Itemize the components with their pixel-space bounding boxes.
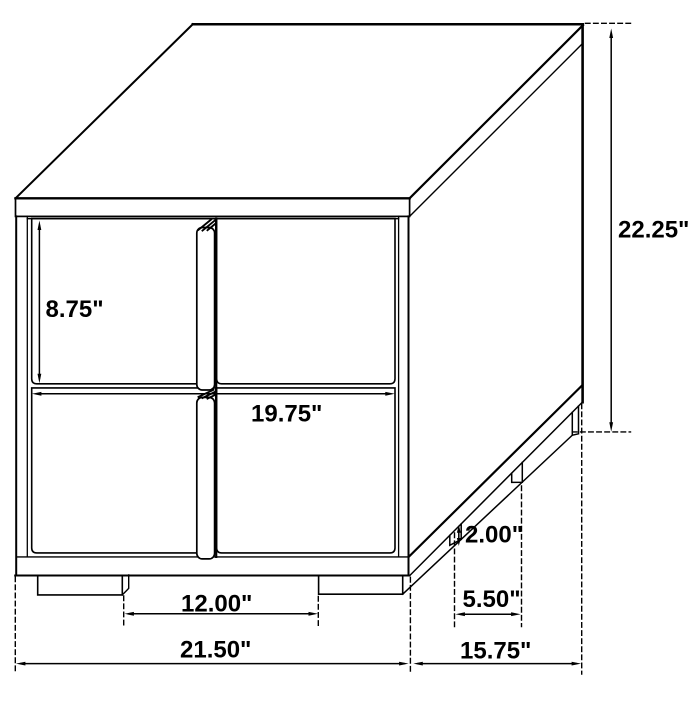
svg-text:22.25": 22.25" — [618, 216, 689, 243]
svg-text:5.50": 5.50" — [463, 586, 521, 613]
svg-text:8.75": 8.75" — [46, 296, 104, 323]
svg-text:19.75": 19.75" — [251, 400, 322, 427]
svg-text:2.00": 2.00" — [465, 522, 523, 549]
svg-text:12.00": 12.00" — [181, 590, 252, 617]
svg-text:15.75": 15.75" — [460, 637, 531, 664]
svg-text:21.50": 21.50" — [180, 637, 251, 664]
